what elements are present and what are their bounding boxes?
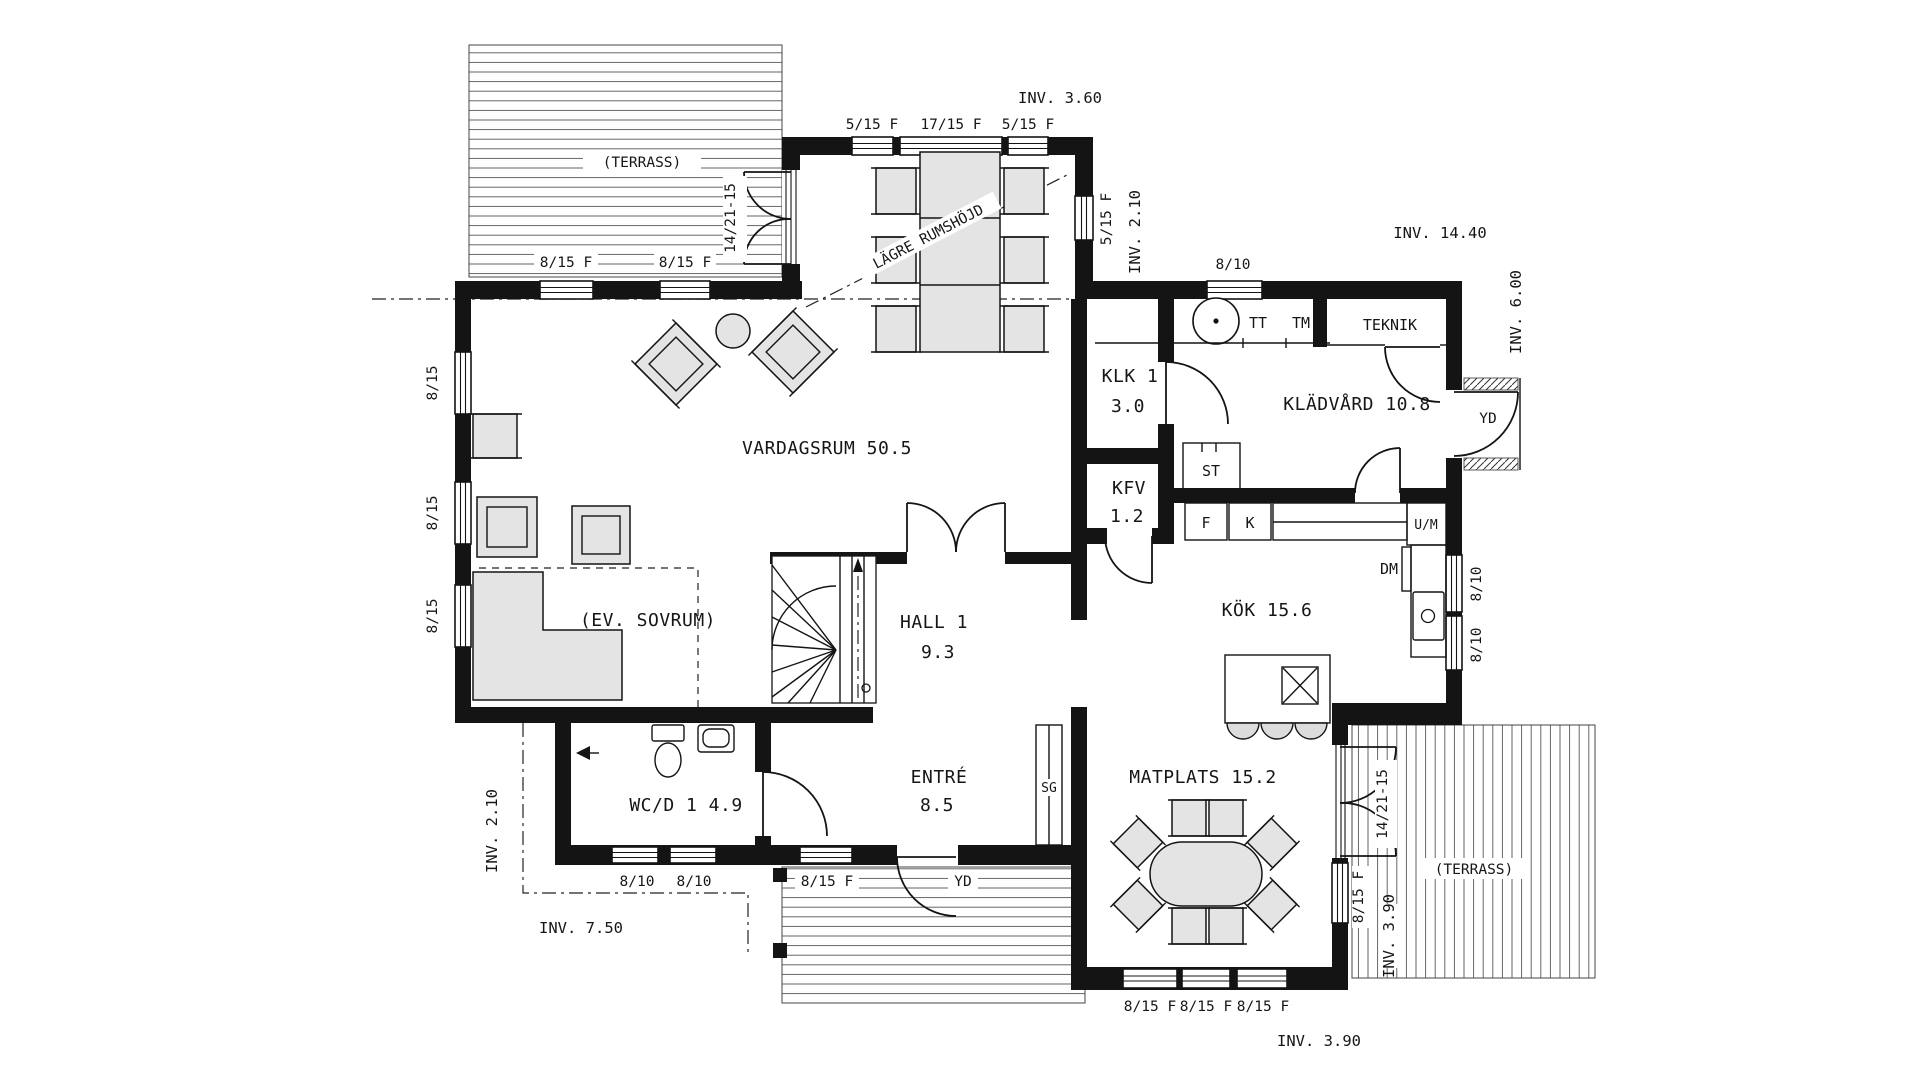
door-label: 14/21-15 — [723, 183, 739, 253]
fixture-label-dm: DM — [1380, 560, 1398, 578]
bar-stool — [1261, 723, 1293, 739]
window-label: 17/15 F — [920, 117, 981, 133]
terrace-label-right: (TERRASS) — [1435, 862, 1514, 878]
fixture-label-sg: SG — [1041, 781, 1057, 796]
fixture-label-f: F — [1201, 514, 1210, 532]
terrace-label-top: (TERRASS) — [603, 155, 682, 171]
porch-post — [773, 943, 787, 958]
room-label-entre: ENTRÉ — [911, 766, 968, 788]
window-label: 8/10 — [677, 874, 712, 890]
door-label: YD — [954, 874, 971, 890]
side-table — [473, 414, 517, 458]
room-label-klk: KLK 1 — [1102, 366, 1159, 387]
window-label: 8/10 — [1216, 257, 1251, 273]
armchair — [631, 319, 720, 408]
floorplan-page: INV. 3.60 INV. 2.10 INV. 14.40 INV. 6.00… — [0, 0, 1920, 1080]
window-label: 8/15 F — [801, 874, 853, 890]
window-label: 8/10 — [1469, 567, 1485, 602]
room-label-matplats: MATPLATS 15.2 — [1129, 767, 1276, 788]
room-label-kladvard: KLÄDVÅRD 10.8 — [1283, 393, 1430, 415]
window-815F — [1123, 969, 1177, 988]
window-815F — [1237, 969, 1287, 988]
staircase — [772, 556, 876, 703]
window-815-vert — [455, 352, 471, 414]
room-label-wcd: WC/D 1 4.9 — [629, 795, 742, 816]
armchair — [748, 307, 837, 396]
floor-drain-icon — [576, 746, 590, 760]
door-threshold — [1464, 458, 1518, 470]
side-table-round — [716, 314, 750, 348]
armchair — [572, 506, 630, 564]
door-label: YD — [1479, 411, 1496, 427]
window-515F — [1008, 137, 1048, 155]
window-515F-vert — [1075, 196, 1093, 240]
room-area-hall: 9.3 — [921, 642, 955, 663]
oval-table — [1150, 842, 1262, 906]
room-label-kok: KÖK 15.6 — [1222, 599, 1313, 621]
toilet-tank — [652, 725, 684, 741]
floorplan-drawing: INV. 3.60 INV. 2.10 INV. 14.40 INV. 6.00… — [0, 0, 1920, 1080]
window-label: 8/15 F — [540, 255, 592, 271]
window-515F — [852, 137, 893, 155]
sink — [1413, 592, 1444, 640]
room-label-teknik: TEKNIK — [1363, 316, 1417, 334]
window-label: 8/15 F — [1351, 871, 1367, 923]
window-810 — [670, 847, 716, 863]
fixture-label-um: U/M — [1414, 518, 1438, 533]
window-label: 8/15 — [425, 366, 441, 401]
window-810-vert — [1446, 616, 1462, 670]
window-815F-vert — [1332, 863, 1348, 923]
dim-inv210-left: INV. 2.10 — [483, 789, 501, 873]
dim-inv360: INV. 3.60 — [1018, 89, 1102, 107]
window-810 — [612, 847, 658, 863]
window-810 — [1207, 281, 1262, 299]
matplats-dining-set — [1110, 800, 1299, 944]
bar-stool — [1295, 723, 1327, 739]
room-label-vardagsrum: VARDAGSRUM 50.5 — [742, 438, 912, 459]
dim-inv600: INV. 6.00 — [1507, 270, 1525, 354]
window-label: 5/15 F — [1099, 193, 1115, 245]
room-label-hall: HALL 1 — [900, 612, 968, 633]
window-815F — [540, 281, 593, 299]
long-table — [920, 152, 1000, 352]
window-label: 8/15 F — [1237, 999, 1289, 1015]
fixture-label-k: K — [1245, 514, 1254, 532]
room-label-ev-sovrum: (EV. SOVRUM) — [580, 610, 716, 631]
window-810-vert — [1446, 555, 1462, 612]
room-label-kfv: KFV — [1112, 478, 1146, 499]
fixture-label-st: ST — [1202, 462, 1220, 480]
window-label: 8/10 — [620, 874, 655, 890]
wc-fixtures — [576, 725, 734, 777]
window-label: 8/15 F — [1124, 999, 1176, 1015]
room-area-entre: 8.5 — [920, 795, 954, 816]
window-label: 8/15 — [425, 599, 441, 634]
window-815F — [800, 847, 852, 863]
door-label: 14/21-15 — [1375, 769, 1391, 839]
window-815-vert — [455, 585, 471, 647]
window-label: 8/15 — [425, 496, 441, 531]
corner-sofa — [473, 572, 622, 700]
dim-inv210-top: INV. 2.10 — [1126, 190, 1144, 274]
fixture-label-tt: TT — [1249, 314, 1267, 332]
fixture-label-tm: TM — [1292, 314, 1310, 332]
dim-inv390-right: INV. 3.90 — [1380, 894, 1398, 978]
dishwasher — [1402, 547, 1411, 591]
dim-inv390-bottom: INV. 3.90 — [1277, 1032, 1361, 1050]
window-815F — [1182, 969, 1230, 988]
room-area-klk: 3.0 — [1111, 396, 1145, 417]
window-815F — [660, 281, 710, 299]
door-threshold — [1464, 378, 1518, 390]
room-area-kfv: 1.2 — [1110, 506, 1144, 527]
porch-post — [773, 868, 787, 882]
kitchen-fixtures — [1183, 443, 1446, 739]
kitchen-island — [1225, 655, 1330, 723]
dim-inv750: INV. 7.50 — [539, 919, 623, 937]
window-label: 5/15 F — [846, 117, 898, 133]
window-label: 8/15 F — [659, 255, 711, 271]
dim-inv1440: INV. 14.40 — [1393, 224, 1486, 242]
window-815-vert — [455, 482, 471, 544]
toilet-bowl — [655, 743, 681, 777]
bar-stool — [1227, 723, 1259, 739]
window-label: 5/15 F — [1002, 117, 1054, 133]
window-label: 8/10 — [1469, 628, 1485, 663]
window-label: 8/15 F — [1180, 999, 1232, 1015]
armchair — [477, 497, 537, 557]
